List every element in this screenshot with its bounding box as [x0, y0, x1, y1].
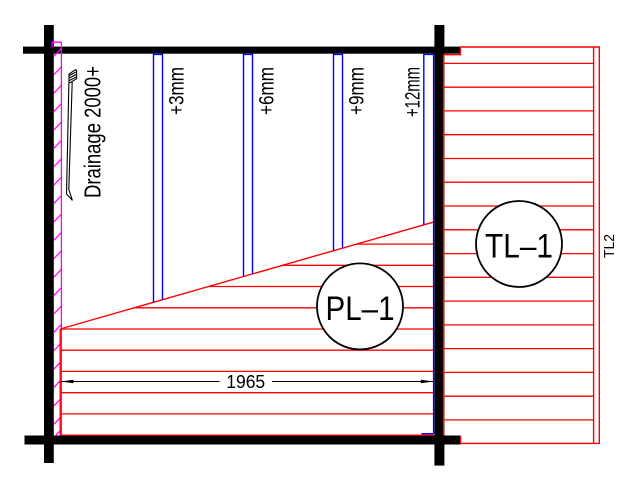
svg-text:TL–1: TL–1	[485, 227, 553, 265]
svg-text:+3mm: +3mm	[166, 67, 189, 115]
svg-text:TL2: TL2	[601, 234, 618, 258]
svg-text:+6mm: +6mm	[256, 67, 279, 115]
svg-text:Drainage 2000+: Drainage 2000+	[80, 66, 106, 198]
svg-text:+12mm: +12mm	[402, 67, 425, 117]
svg-text:1965: 1965	[226, 371, 265, 392]
svg-text:PL–1: PL–1	[326, 290, 395, 328]
svg-text:+9mm: +9mm	[346, 67, 369, 115]
